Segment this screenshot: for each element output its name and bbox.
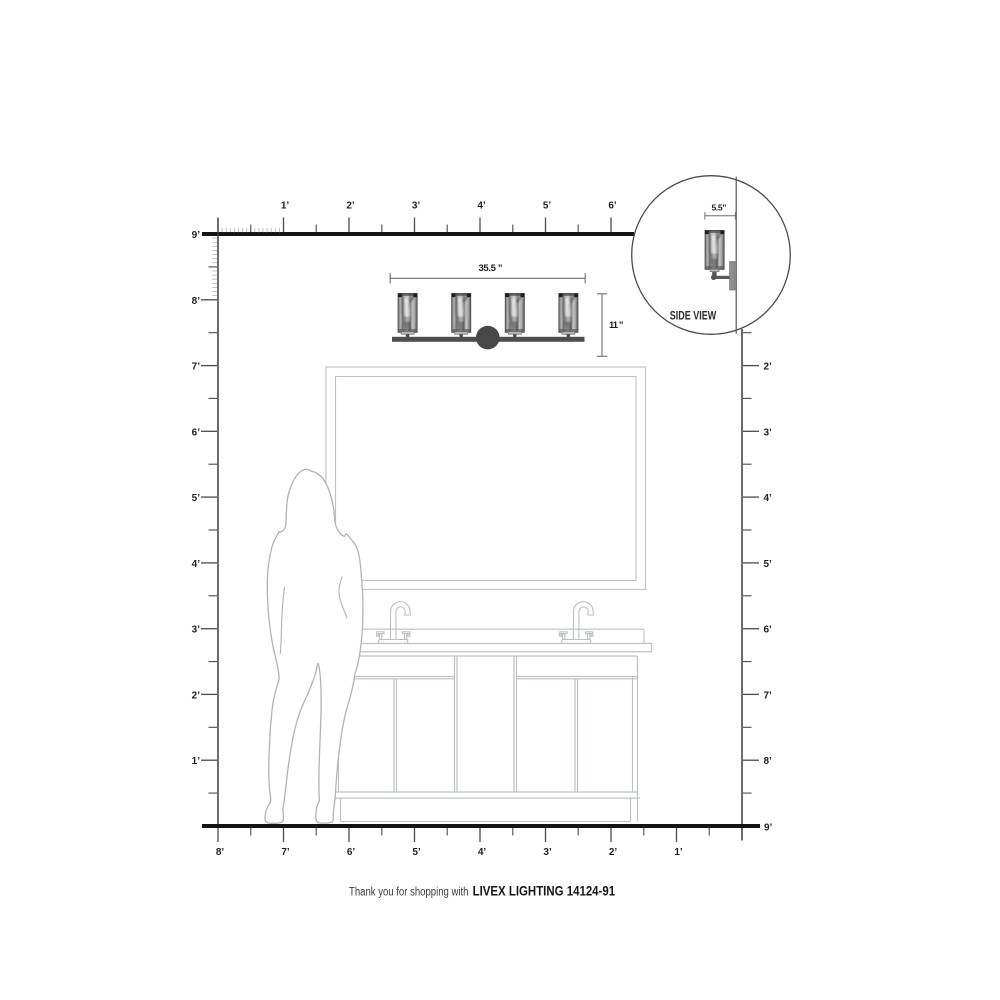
svg-text:9’: 9’ [764,823,773,834]
svg-text:1’: 1’ [192,756,201,767]
svg-text:7’: 7’ [281,847,290,858]
svg-text:2’: 2’ [764,362,773,373]
svg-text:5’: 5’ [412,847,421,858]
svg-text:Thank you for shopping with: Thank you for shopping with [349,886,469,898]
svg-text:1’: 1’ [674,847,683,858]
svg-text:4’: 4’ [764,493,773,504]
svg-text:7’: 7’ [764,690,773,701]
svg-text:3’: 3’ [412,201,421,212]
svg-text:1’: 1’ [281,201,290,212]
svg-text:3’: 3’ [543,847,552,858]
svg-text:11 ”: 11 ” [609,320,624,331]
svg-text:2’: 2’ [609,847,618,858]
svg-text:5’: 5’ [192,493,201,504]
svg-text:4’: 4’ [192,559,201,570]
svg-text:4’: 4’ [477,201,486,212]
svg-text:6’: 6’ [192,427,201,438]
svg-text:3’: 3’ [192,625,201,636]
svg-text:6’: 6’ [608,201,617,212]
svg-text:SIDE VIEW: SIDE VIEW [670,311,717,323]
svg-text:2’: 2’ [346,201,355,212]
svg-text:5’: 5’ [543,201,552,212]
svg-text:LIVEX LIGHTING 14124-91: LIVEX LIGHTING 14124-91 [473,883,616,898]
svg-text:8’: 8’ [216,847,225,858]
svg-text:6’: 6’ [764,625,773,636]
svg-text:7’: 7’ [192,362,201,373]
svg-text:6’: 6’ [347,847,356,858]
svg-text:9’: 9’ [192,230,201,241]
svg-text:2’: 2’ [192,690,201,701]
svg-text:35.5 ”: 35.5 ” [479,263,503,274]
svg-text:5’: 5’ [764,559,773,570]
svg-text:8’: 8’ [192,296,201,307]
svg-text:3’: 3’ [764,427,773,438]
svg-text:4’: 4’ [478,847,487,858]
svg-text:5.5”: 5.5” [712,202,727,212]
svg-text:8’: 8’ [764,756,773,767]
